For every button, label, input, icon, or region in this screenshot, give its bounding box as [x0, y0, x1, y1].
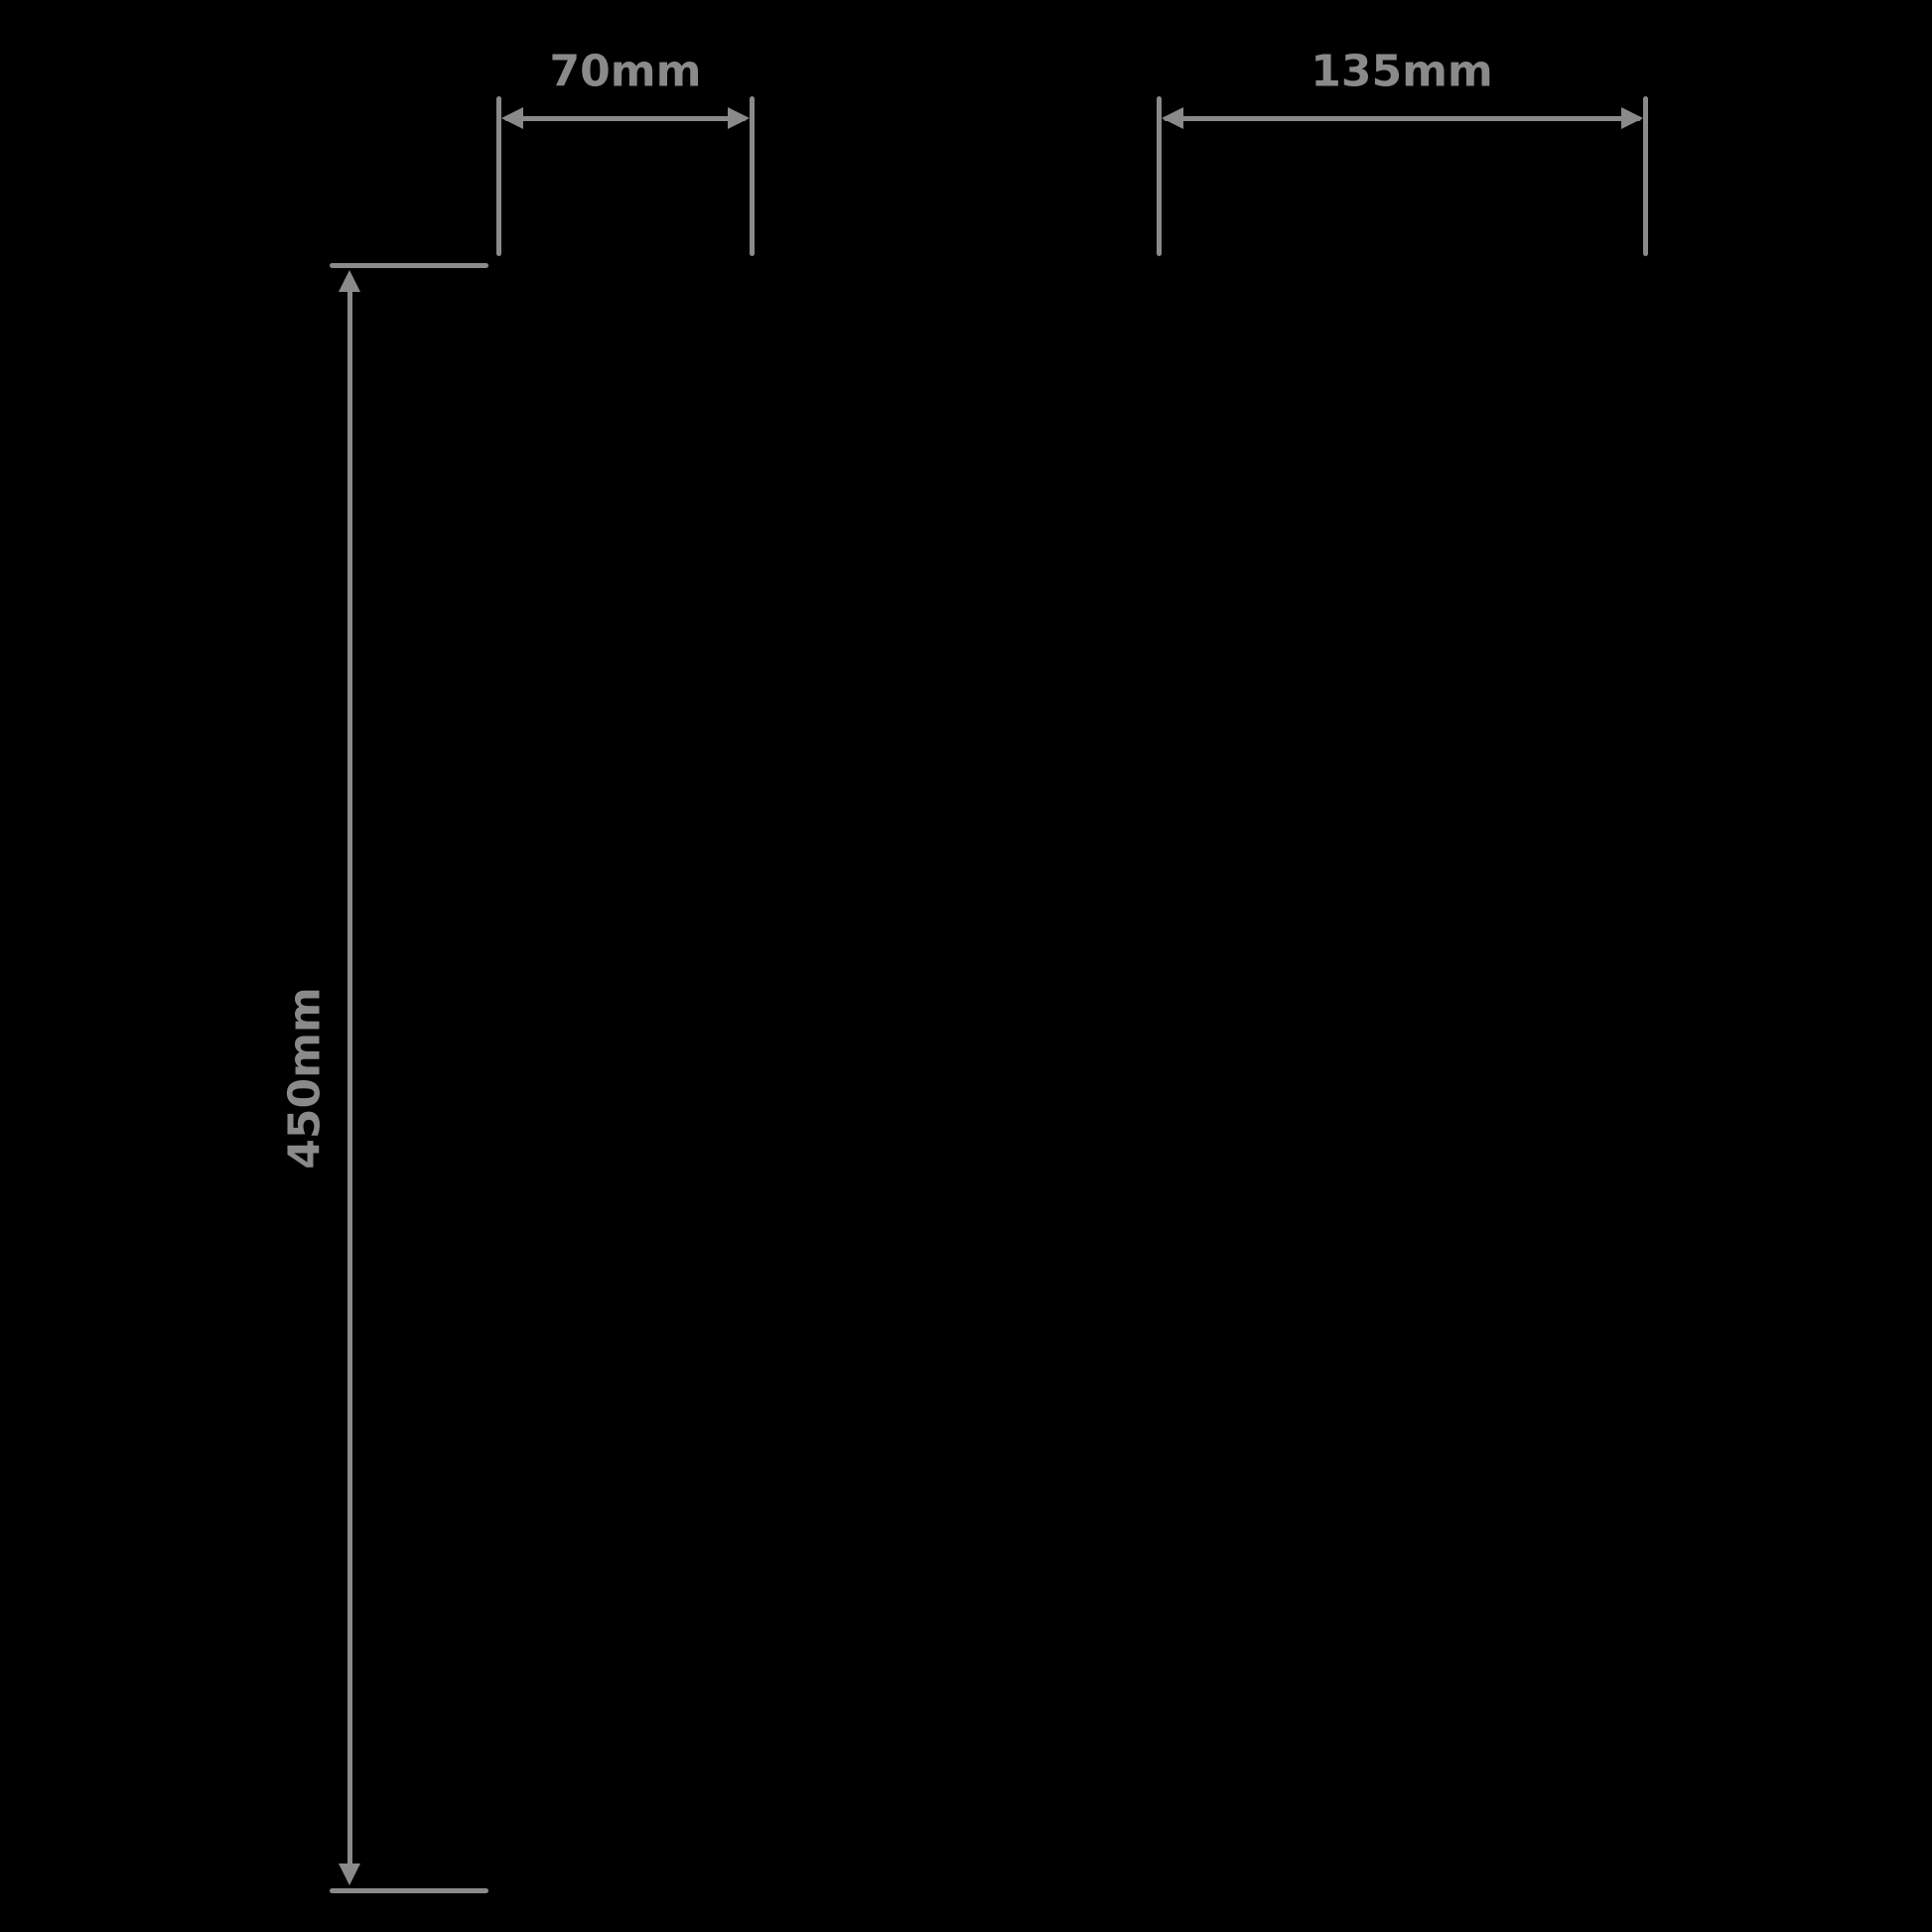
dim-70mm-extension-line-right — [750, 96, 755, 256]
dim-450mm-label: 450mm — [280, 987, 331, 1170]
dim-135mm-extension-line-right — [1643, 96, 1648, 256]
arrow-up-icon — [339, 270, 360, 292]
dim-450mm-dimension-line — [347, 278, 352, 1878]
arrow-right-icon — [728, 107, 750, 129]
dim-450mm-extension-line-top — [330, 263, 488, 268]
dimension-diagram: 70mm 135mm 450mm — [0, 0, 1932, 1932]
dim-70mm-label: 70mm — [550, 47, 702, 97]
arrow-right-icon — [1621, 107, 1643, 129]
arrow-left-icon — [1162, 107, 1183, 129]
dim-135mm-label: 135mm — [1311, 47, 1493, 97]
dim-450mm-extension-line-bottom — [330, 1888, 488, 1893]
dim-135mm-dimension-line — [1164, 116, 1641, 121]
arrow-left-icon — [501, 107, 523, 129]
arrow-down-icon — [339, 1863, 360, 1885]
dim-70mm-dimension-line — [504, 116, 747, 121]
